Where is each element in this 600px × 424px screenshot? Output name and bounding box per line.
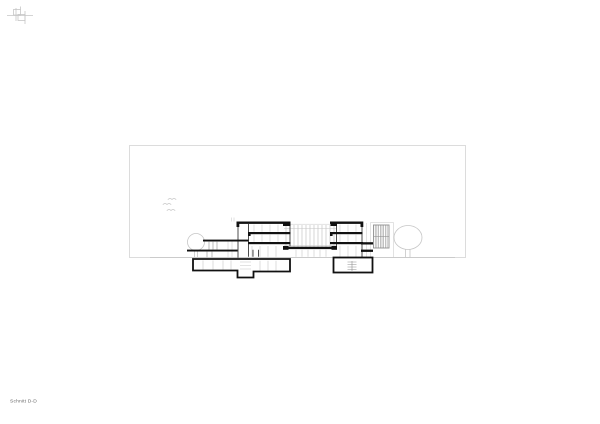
tree-left-icon — [188, 234, 205, 258]
birds-icon — [163, 199, 176, 211]
section-walls — [238, 222, 362, 258]
section-drawing — [0, 0, 600, 424]
drawing-sheet: Schnitt D-D — [0, 0, 600, 424]
basement-cut-outlines — [193, 258, 373, 278]
louver-screen — [374, 225, 390, 248]
sheet-title: Schnitt D-D — [10, 399, 37, 404]
section-cut-slabs — [187, 222, 373, 252]
tree-right-icon — [394, 226, 422, 258]
upper-floor-partition-lines — [254, 225, 356, 257]
architect-stamp-logo — [7, 7, 33, 25]
site-boundary-frame — [130, 146, 466, 258]
canopy-posts — [207, 242, 217, 258]
basement-right — [334, 258, 373, 273]
